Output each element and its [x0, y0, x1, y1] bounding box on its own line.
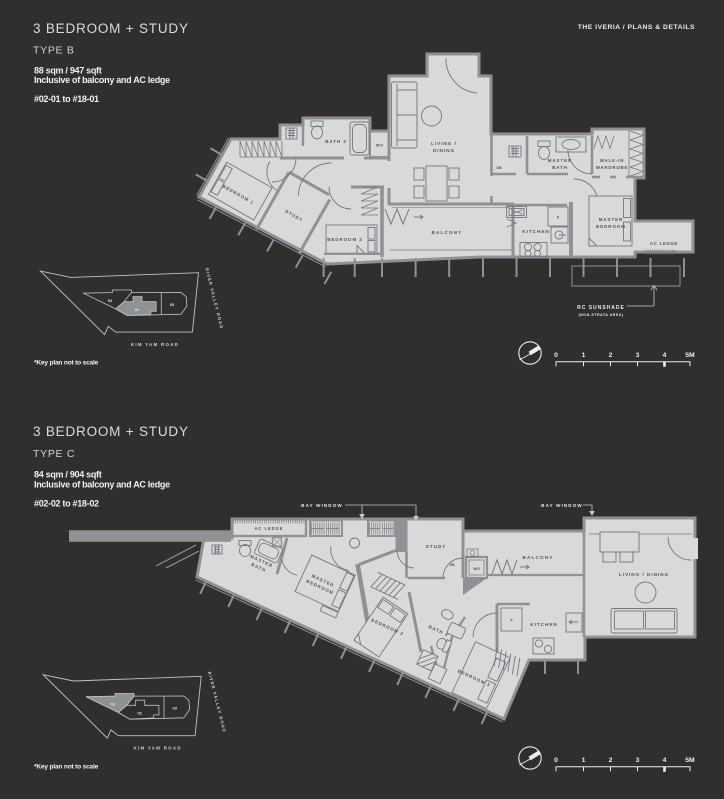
svg-text:#02-02 to #18-02: #02-02 to #18-02	[34, 499, 99, 509]
svg-text:TYPE C: TYPE C	[33, 448, 75, 460]
svg-text:01: 01	[135, 307, 140, 312]
svg-text:BAY WINDOW: BAY WINDOW	[301, 503, 343, 508]
svg-text:03: 03	[170, 302, 175, 307]
svg-text:84 sqm / 904 sqft: 84 sqm / 904 sqft	[34, 470, 102, 480]
svg-text:BEDROOM: BEDROOM	[596, 224, 626, 229]
svg-text:5M: 5M	[685, 757, 695, 764]
svg-text:THE IVERIA / PLANS & DETAILS: THE IVERIA / PLANS & DETAILS	[578, 24, 695, 31]
svg-text:3 BEDROOM + STUDY: 3 BEDROOM + STUDY	[33, 424, 189, 439]
svg-text:BATH 2: BATH 2	[325, 139, 347, 144]
svg-text:WALK-IN: WALK-IN	[600, 158, 624, 163]
svg-text:LIVING /: LIVING /	[431, 141, 457, 146]
svg-text:KIM YAM ROAD: KIM YAM ROAD	[131, 342, 179, 347]
svg-text:2: 2	[609, 352, 613, 359]
svg-text:*Key plan not to scale: *Key plan not to scale	[34, 360, 99, 367]
svg-text:Inclusive of balcony and AC le: Inclusive of balcony and AC ledge	[34, 480, 170, 490]
svg-text:3: 3	[636, 352, 640, 359]
svg-text:MASTER: MASTER	[599, 217, 624, 222]
svg-text:4: 4	[663, 352, 667, 359]
svg-text:AC LEDGE: AC LEDGE	[650, 241, 678, 246]
svg-text:STUDY: STUDY	[426, 544, 447, 549]
svg-text:TYPE B: TYPE B	[33, 45, 75, 57]
svg-text:0: 0	[554, 352, 558, 359]
svg-text:BALCONY: BALCONY	[431, 230, 462, 235]
svg-text:KITCHEN: KITCHEN	[530, 622, 557, 627]
svg-text:*Key plan not to scale: *Key plan not to scale	[34, 764, 99, 771]
svg-text:KIM YAM ROAD: KIM YAM ROAD	[134, 746, 182, 751]
svg-text:MASTER: MASTER	[548, 158, 573, 163]
svg-text:BATH: BATH	[552, 165, 568, 170]
svg-text:3 BEDROOM + STUDY: 3 BEDROOM + STUDY	[33, 21, 189, 36]
svg-text:DB: DB	[497, 166, 502, 170]
svg-text:RC SUNSHADE: RC SUNSHADE	[577, 305, 625, 311]
svg-text:03: 03	[172, 706, 177, 711]
svg-text:W/D: W/D	[376, 144, 384, 148]
svg-text:WARDROBE: WARDROBE	[596, 165, 629, 170]
svg-text:88 sqm / 947 sqft: 88 sqm / 947 sqft	[34, 66, 102, 76]
svg-text:LIVING / DINING: LIVING / DINING	[619, 572, 669, 577]
svg-text:5M: 5M	[685, 352, 695, 359]
svg-text:BALCONY: BALCONY	[522, 555, 553, 560]
svg-text:3: 3	[636, 757, 640, 764]
svg-text:KITCHEN: KITCHEN	[522, 229, 549, 234]
svg-text:Inclusive of balcony and AC le: Inclusive of balcony and AC ledge	[34, 75, 170, 85]
svg-text:BAY WINDOW: BAY WINDOW	[541, 503, 583, 508]
svg-text:DINING: DINING	[433, 148, 455, 153]
svg-text:1: 1	[582, 352, 586, 359]
svg-text:02: 02	[108, 298, 113, 303]
svg-text:1: 1	[582, 757, 586, 764]
svg-text:02: 02	[110, 702, 115, 707]
svg-text:4: 4	[663, 757, 667, 764]
svg-text:#02-01 to #18-01: #02-01 to #18-01	[34, 94, 99, 104]
svg-text:BEDROOM 2: BEDROOM 2	[327, 237, 363, 242]
svg-text:0: 0	[554, 757, 558, 764]
svg-text:DB: DB	[450, 563, 455, 567]
svg-text:(NON-STRATA AREA): (NON-STRATA AREA)	[578, 313, 623, 317]
svg-text:2: 2	[609, 757, 613, 764]
svg-text:01: 01	[137, 711, 142, 716]
svg-text:AC LEDGE: AC LEDGE	[255, 526, 284, 531]
svg-text:W/D: W/D	[473, 567, 480, 571]
